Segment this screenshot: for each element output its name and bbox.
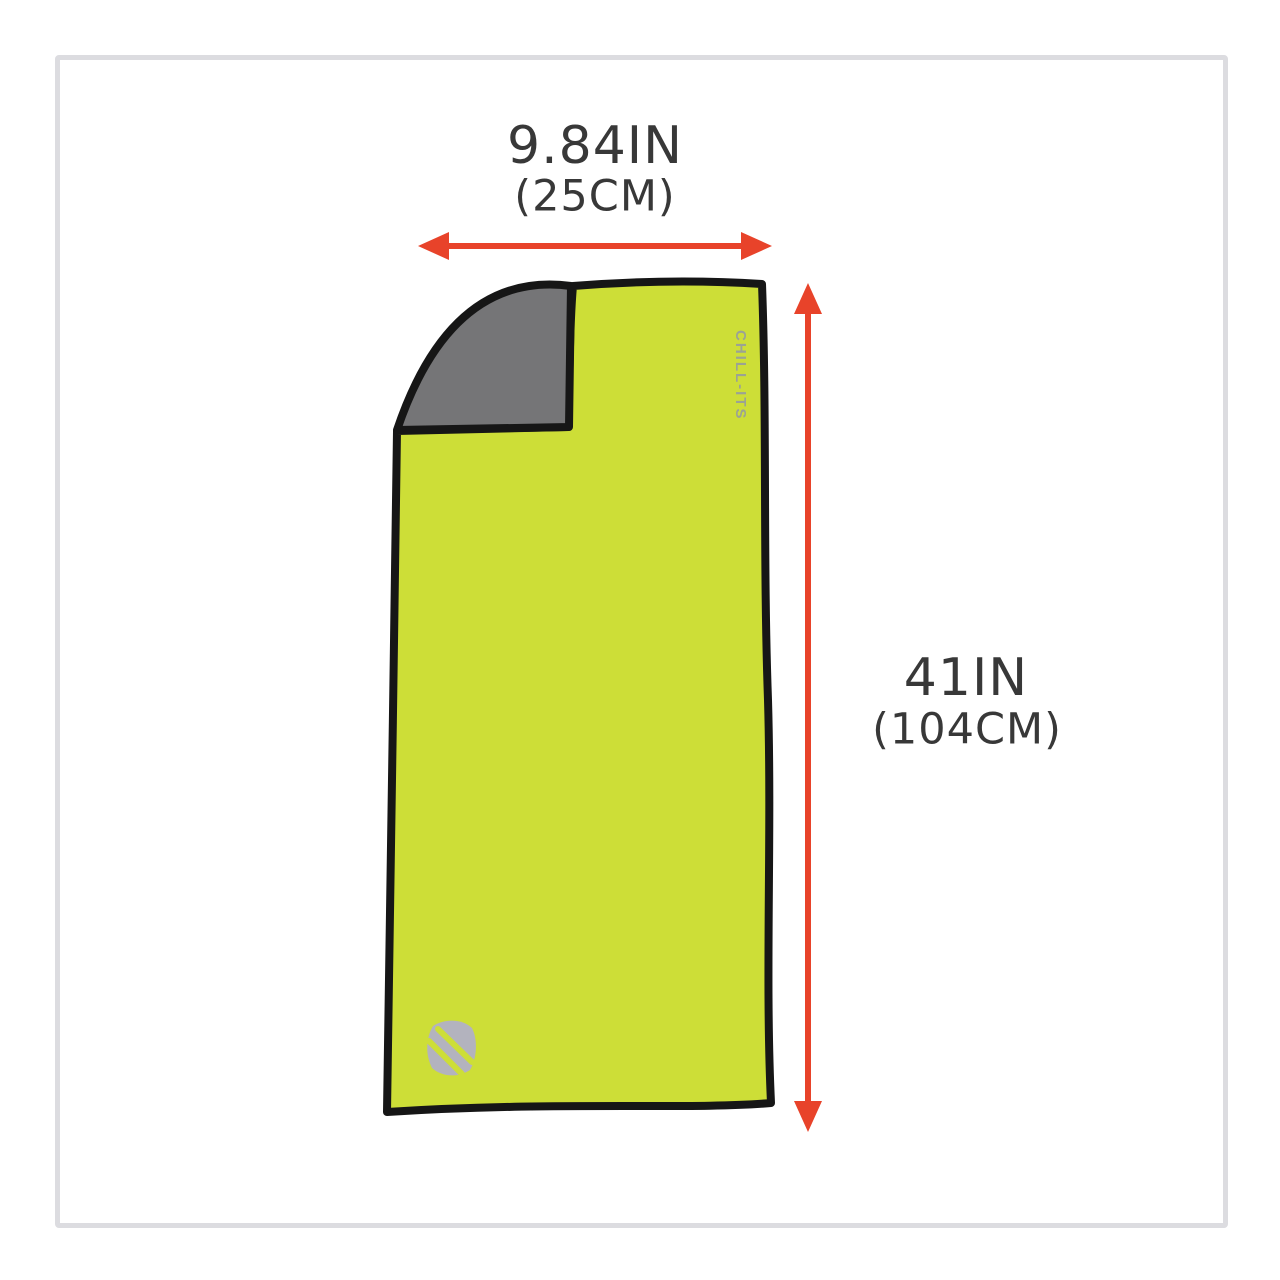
height-label-metric: (104CM) [872,709,1062,752]
brand-shield-icon [427,1021,476,1076]
width-label-inches: 9.84IN [507,120,683,172]
height-dimension-arrow [794,283,822,1132]
product-dimension-diagram: CHILL-ITS 9.84IN (25CM) 41IN (104CM) [0,0,1280,1280]
towel-fold-corner-shape [397,285,571,430]
height-label-inches: 41IN [904,652,1028,704]
towel-brand-vertical-text: CHILL-ITS [732,330,749,421]
width-dimension-arrow [418,232,772,260]
width-label-metric: (25CM) [514,176,675,219]
